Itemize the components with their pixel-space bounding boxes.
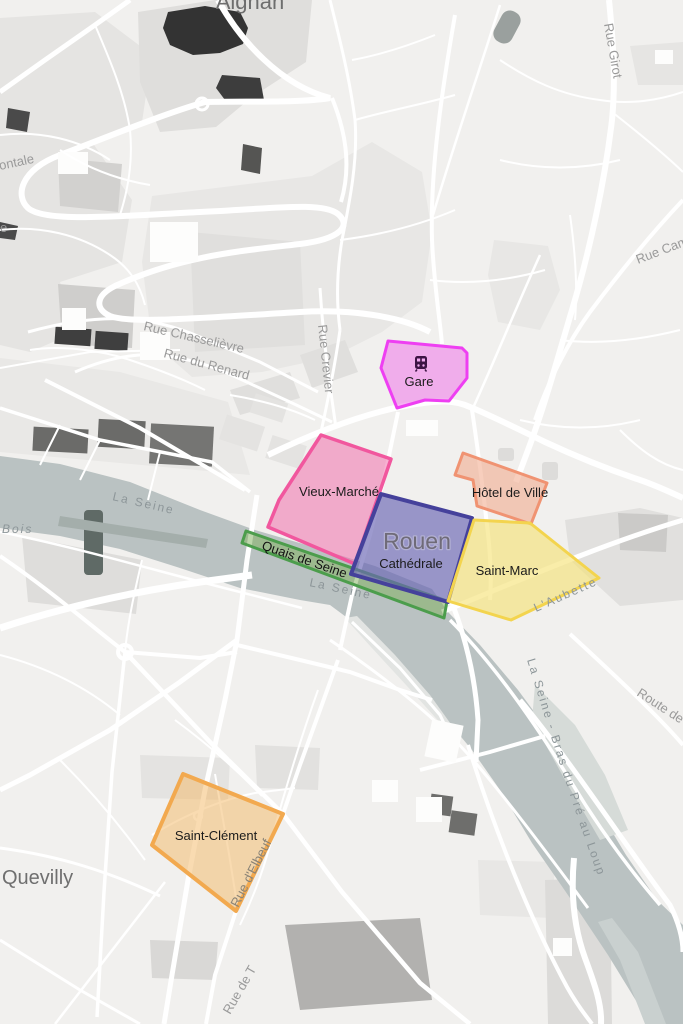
svg-text:e: e: [0, 220, 7, 235]
svg-text:Cathédrale: Cathédrale: [379, 556, 443, 571]
svg-text:Vieux-Marché: Vieux-Marché: [299, 484, 379, 499]
svg-text:Aighan: Aighan: [216, 0, 285, 14]
svg-text:Saint-Clément: Saint-Clément: [175, 828, 258, 843]
svg-text:Gare: Gare: [405, 374, 434, 389]
svg-text:Bois: Bois: [2, 522, 33, 536]
svg-text:Hôtel de Ville: Hôtel de Ville: [472, 485, 548, 500]
svg-text:Rouen: Rouen: [383, 528, 451, 554]
svg-text:Quevilly: Quevilly: [2, 867, 73, 889]
svg-text:Saint-Marc: Saint-Marc: [476, 563, 539, 578]
